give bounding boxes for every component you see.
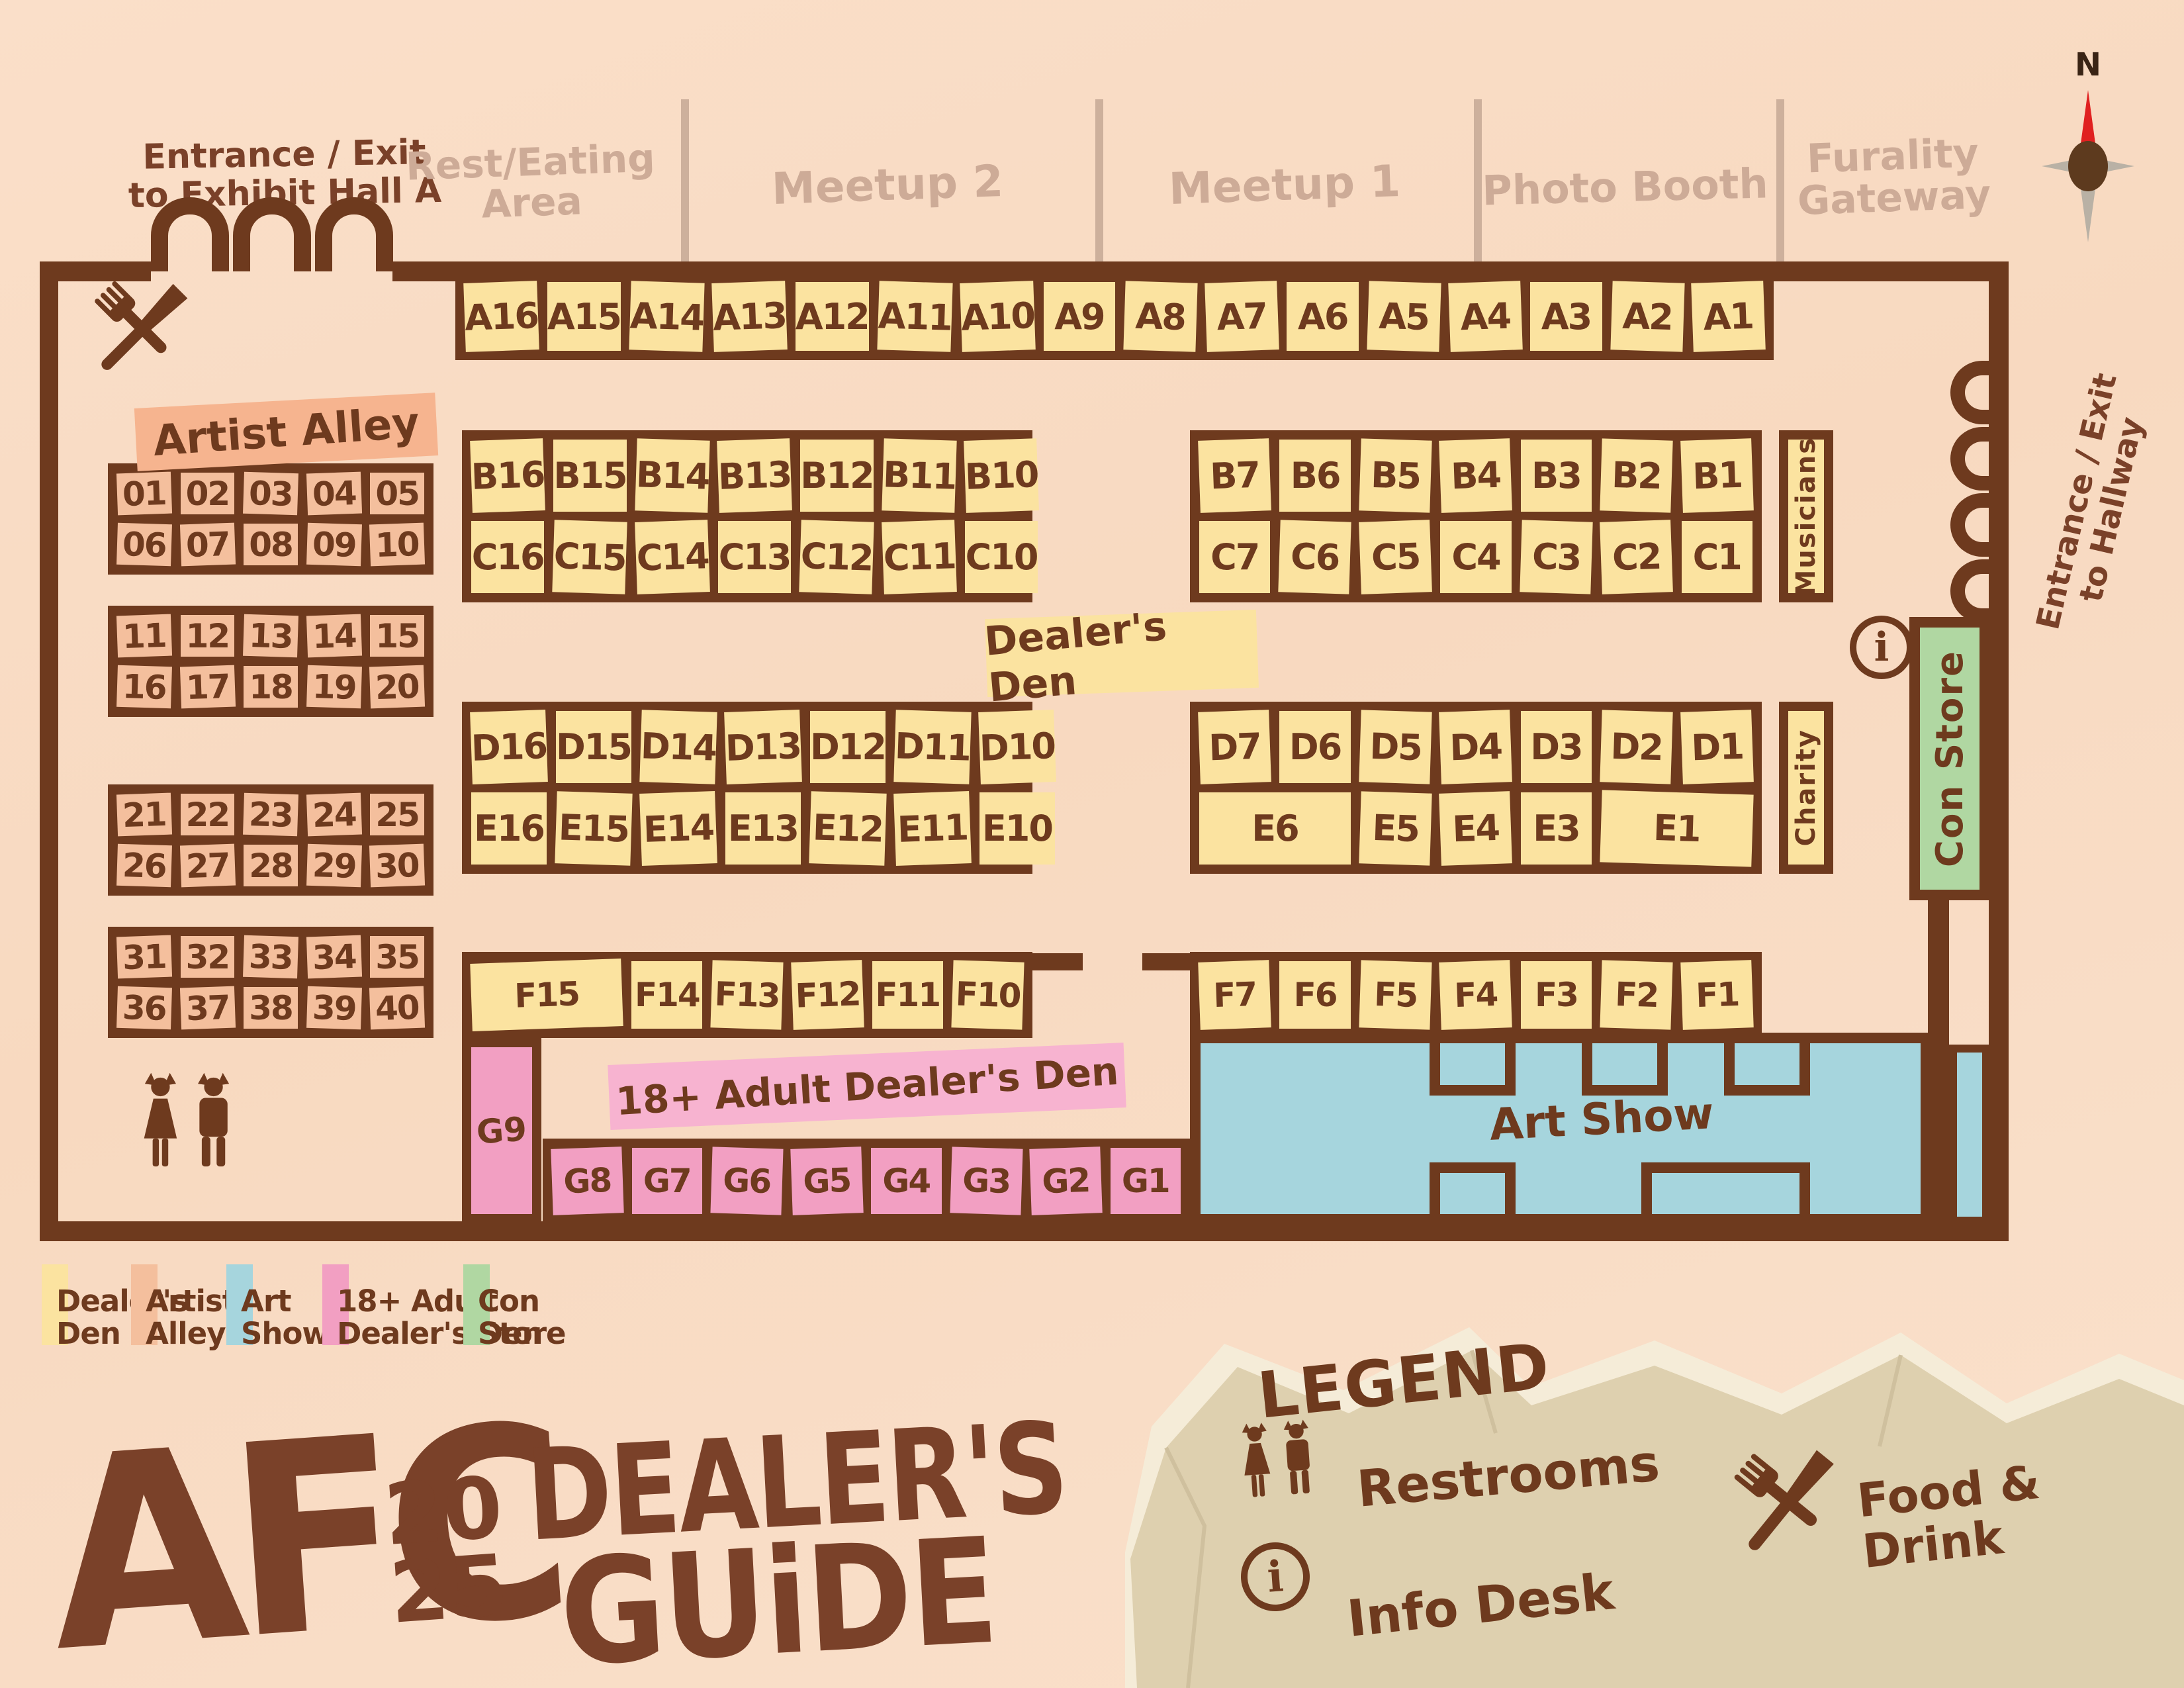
- booth-G4: G4: [871, 1148, 942, 1214]
- booth-F12: F12: [791, 960, 864, 1030]
- booth-07: 07: [180, 523, 236, 567]
- booth-D13: D13: [724, 710, 802, 784]
- booth-C13: C13: [718, 521, 791, 593]
- booth-B13: B13: [717, 438, 792, 513]
- booth-F14: F14: [631, 961, 702, 1029]
- entrance-arch: [151, 197, 229, 271]
- booth-A2: A2: [1610, 281, 1684, 352]
- booth-F6: F6: [1279, 961, 1350, 1029]
- booth-08: 08: [244, 524, 298, 565]
- booth-E15: E15: [555, 791, 632, 866]
- booth-13: 13: [243, 614, 298, 658]
- booth-10: 10: [369, 523, 425, 567]
- artist-alley-label: Artist Alley: [134, 393, 438, 471]
- booth-40: 40: [369, 986, 425, 1030]
- booth-21: 21: [116, 793, 172, 837]
- booth-block-de-right: D7D6D5D4D3D2D1E6E5E4E3E1: [1190, 702, 1762, 874]
- booth-01: 01: [116, 472, 172, 516]
- wall-stub: [1031, 953, 1083, 970]
- art-show-panel: [1430, 1033, 1516, 1096]
- entrance-arch: [233, 197, 311, 271]
- booth-38: 38: [244, 987, 298, 1029]
- booth-C5: C5: [1359, 520, 1432, 594]
- booth-D5: D5: [1359, 710, 1432, 784]
- dealers-den-label: Dealer's Den: [985, 610, 1259, 697]
- booth-E11: E11: [893, 791, 972, 866]
- wall-left: [40, 261, 58, 1241]
- booth-15: 15: [370, 615, 424, 657]
- swatch-group-adult-den: 18+ AdultDealer's Den: [322, 1264, 475, 1357]
- booth-F13: F13: [711, 960, 784, 1029]
- booth-33: 33: [243, 935, 298, 979]
- booth-E13: E13: [725, 792, 801, 865]
- booth-C2: C2: [1600, 520, 1673, 594]
- booth-G1: G1: [1111, 1148, 1181, 1214]
- booth-D16: D16: [470, 710, 548, 784]
- artist-alley-block-3: 21222324252627282930: [108, 784, 433, 896]
- booth-A8: A8: [1124, 281, 1198, 352]
- booth-C11: C11: [882, 520, 957, 594]
- booth-A4: A4: [1448, 281, 1522, 352]
- booth-block-de-left: D16D15D14D13D12D11D10E16E15E14E13E12E11E…: [462, 702, 1032, 874]
- booth-G7: G7: [632, 1148, 703, 1214]
- swatch-group-con-store: ConStore: [463, 1264, 576, 1357]
- booth-A13: A13: [711, 281, 788, 352]
- booth-E4: E4: [1439, 791, 1512, 866]
- booth-block-bc-right: B7B6B5B4B3B2B1C7C6C5C4C3C2C1: [1190, 430, 1762, 602]
- booth-C4: C4: [1440, 521, 1511, 593]
- booth-39: 39: [306, 986, 362, 1030]
- booth-G8: G8: [551, 1147, 623, 1215]
- booth-14: 14: [306, 614, 362, 658]
- booth-24: 24: [306, 793, 362, 837]
- booth-F4: F4: [1439, 960, 1513, 1030]
- restrooms-icon: [132, 1069, 242, 1175]
- booth-A9: A9: [1044, 282, 1116, 351]
- booth-27: 27: [180, 844, 236, 888]
- booth-29: 29: [306, 844, 362, 888]
- entrance-hallway-label: Entrance / Exit to Hallway: [2025, 346, 2164, 665]
- booth-B7: B7: [1198, 438, 1271, 513]
- booth-C10: C10: [965, 521, 1038, 593]
- booth-16: 16: [116, 665, 172, 709]
- booth-31: 31: [116, 935, 172, 979]
- booth-block-a-row: A16A15A14A13A12A11A10A9A8A7A6A5A4A3A2A1: [455, 273, 1774, 360]
- booth-E1: E1: [1600, 790, 1753, 867]
- room-divider: [681, 99, 689, 261]
- booth-28: 28: [244, 845, 298, 886]
- booth-A11: A11: [877, 281, 952, 352]
- booth-17: 17: [180, 665, 236, 709]
- booth-block-f-left: F15F14F13F12F11F10: [462, 952, 1032, 1038]
- booth-F7: F7: [1198, 960, 1271, 1030]
- booth-E14: E14: [639, 791, 717, 866]
- booth-G5: G5: [790, 1147, 863, 1215]
- booth-E5: E5: [1359, 791, 1432, 865]
- booth-A14: A14: [629, 281, 704, 352]
- restrooms-icon: [1232, 1417, 1323, 1504]
- booth-A16: A16: [463, 281, 539, 352]
- booth-C7: C7: [1199, 521, 1270, 593]
- booth-32: 32: [181, 936, 235, 978]
- booth-B3: B3: [1521, 440, 1592, 512]
- food-drink-icon: [79, 268, 202, 391]
- booth-35: 35: [370, 936, 424, 978]
- booth-A6: A6: [1287, 282, 1359, 351]
- wall-right: [1989, 261, 2009, 1241]
- booth-02: 02: [181, 473, 235, 514]
- booth-C15: C15: [553, 520, 628, 594]
- art-show-panel: [1641, 1162, 1810, 1225]
- booth-charity: Charity: [1779, 702, 1833, 874]
- booth-F15: F15: [470, 959, 623, 1031]
- booth-19: 19: [306, 665, 362, 709]
- compass-needle-icon: [2038, 83, 2138, 249]
- compass-north-label: N: [2038, 46, 2138, 83]
- adult-dealers-den-label: 18+ Adult Dealer's Den: [608, 1043, 1126, 1130]
- booth-D1: D1: [1680, 710, 1754, 784]
- booth-A1: A1: [1692, 281, 1766, 352]
- booth-C16: C16: [471, 521, 544, 593]
- booth-B15: B15: [553, 440, 626, 512]
- booth-A3: A3: [1530, 282, 1602, 351]
- booth-A12: A12: [796, 282, 869, 351]
- hallway-arch: [1950, 493, 1990, 557]
- furality-gateway-label: Furality Gateway: [1783, 132, 2004, 222]
- art-show-panel: [1430, 1162, 1516, 1225]
- hallway-arch: [1950, 427, 1990, 491]
- room-divider: [1776, 99, 1784, 261]
- hallway-arch: [1950, 361, 1990, 424]
- food-drink-icon: [1714, 1430, 1860, 1575]
- booth-musicians: Musicians: [1779, 430, 1833, 602]
- meetup-1-label: Meetup 1: [1103, 156, 1467, 214]
- booth-D14: D14: [639, 710, 717, 784]
- booth-D15: D15: [556, 711, 631, 783]
- booth-11: 11: [116, 614, 172, 658]
- booth-22: 22: [181, 794, 235, 835]
- booth-06: 06: [116, 523, 172, 567]
- booth-18: 18: [244, 666, 298, 708]
- booth-E16: E16: [471, 792, 547, 865]
- booth-B1: B1: [1680, 438, 1754, 513]
- booth-A15: A15: [547, 282, 621, 351]
- booth-F1: F1: [1680, 960, 1754, 1030]
- hallway-arch: [1950, 559, 1990, 623]
- booth-30: 30: [369, 844, 425, 888]
- booth-D6: D6: [1279, 711, 1350, 783]
- booth-D3: D3: [1521, 711, 1592, 783]
- booth-F10: F10: [951, 960, 1024, 1029]
- logo-year: 2025: [382, 1469, 510, 1632]
- info-desk-icon: i: [1850, 616, 1913, 679]
- booth-C12: C12: [799, 520, 875, 594]
- booth-C1: C1: [1682, 521, 1752, 593]
- logo-guide: GUiDE: [556, 1507, 999, 1688]
- booth-D7: D7: [1198, 710, 1271, 784]
- artist-alley-block-4: 31323334353637383940: [108, 927, 433, 1038]
- entrance-arch: [315, 197, 393, 271]
- legend-food-drink-label: Food & Drink: [1855, 1457, 2048, 1577]
- booth-block-g-row: G8G7G6G5G4G3G2G1: [543, 1139, 1190, 1223]
- artist-alley-block-2: 11121314151617181920: [108, 606, 433, 717]
- booth-37: 37: [180, 986, 236, 1030]
- booth-C14: C14: [635, 520, 710, 594]
- booth-C3: C3: [1520, 520, 1593, 594]
- booth-B12: B12: [800, 440, 873, 512]
- booth-B5: B5: [1359, 438, 1432, 512]
- booth-D11: D11: [893, 710, 971, 784]
- booth-G2: G2: [1029, 1147, 1102, 1215]
- booth-E10: E10: [979, 792, 1055, 865]
- booth-23: 23: [243, 793, 298, 837]
- room-divider: [1095, 99, 1103, 261]
- compass-rose: N: [2038, 46, 2138, 252]
- booth-C6: C6: [1279, 520, 1352, 594]
- booth-D10: D10: [978, 710, 1056, 784]
- artist-alley-block-1: 01020304050607080910: [108, 463, 433, 575]
- booth-05: 05: [370, 473, 424, 514]
- booth-E12: E12: [809, 791, 886, 866]
- booth-03: 03: [243, 472, 298, 516]
- booth-block-bc-left: B16B15B14B13B12B11B10C16C15C14C13C12C11C…: [462, 430, 1032, 602]
- booth-block-f-right: F7F6F5F4F3F2F1: [1190, 952, 1762, 1038]
- booth-26: 26: [116, 844, 172, 888]
- booth-F5: F5: [1359, 960, 1432, 1029]
- room-divider: [1474, 99, 1482, 261]
- booth-12: 12: [181, 615, 235, 657]
- con-store: Con Store: [1909, 617, 1990, 900]
- booth-B2: B2: [1600, 438, 1673, 512]
- booth-B4: B4: [1439, 438, 1512, 513]
- rest-eating-area-label: Rest/Eating Area: [379, 137, 683, 228]
- booth-04: 04: [306, 472, 362, 516]
- booth-F3: F3: [1521, 961, 1592, 1029]
- booth-E6: E6: [1199, 792, 1351, 865]
- wall-stub: [1142, 953, 1195, 970]
- booth-B16: B16: [470, 438, 545, 513]
- dealers-guide-map: Entrance / Exit to Exhibit Hall A Rest/E…: [0, 0, 2184, 1688]
- booth-D2: D2: [1600, 710, 1673, 784]
- booth-A5: A5: [1367, 281, 1441, 352]
- booth-F2: F2: [1600, 960, 1674, 1029]
- booth-F11: F11: [872, 961, 943, 1029]
- booth-E3: E3: [1521, 792, 1592, 865]
- art-show-divider-wall: [1928, 899, 1949, 1230]
- booth-B11: B11: [882, 438, 957, 512]
- booth-34: 34: [306, 935, 362, 979]
- photo-booth-label: Photo Booth: [1481, 162, 1769, 212]
- booth-g9: G9: [462, 1038, 541, 1223]
- booth-D12: D12: [810, 711, 886, 783]
- booth-A10: A10: [960, 281, 1036, 352]
- booth-09: 09: [306, 523, 362, 567]
- booth-B6: B6: [1279, 440, 1350, 512]
- booth-36: 36: [116, 986, 172, 1030]
- booth-A7: A7: [1205, 281, 1279, 352]
- booth-D4: D4: [1439, 710, 1512, 784]
- booth-B10: B10: [964, 438, 1039, 513]
- meetup-2-label: Meetup 2: [688, 156, 1087, 215]
- booth-G6: G6: [710, 1147, 783, 1215]
- booth-25: 25: [370, 794, 424, 835]
- art-show-annex: [1949, 1045, 1990, 1225]
- booth-B14: B14: [635, 438, 710, 512]
- booth-G3: G3: [950, 1147, 1023, 1215]
- booth-20: 20: [369, 665, 425, 709]
